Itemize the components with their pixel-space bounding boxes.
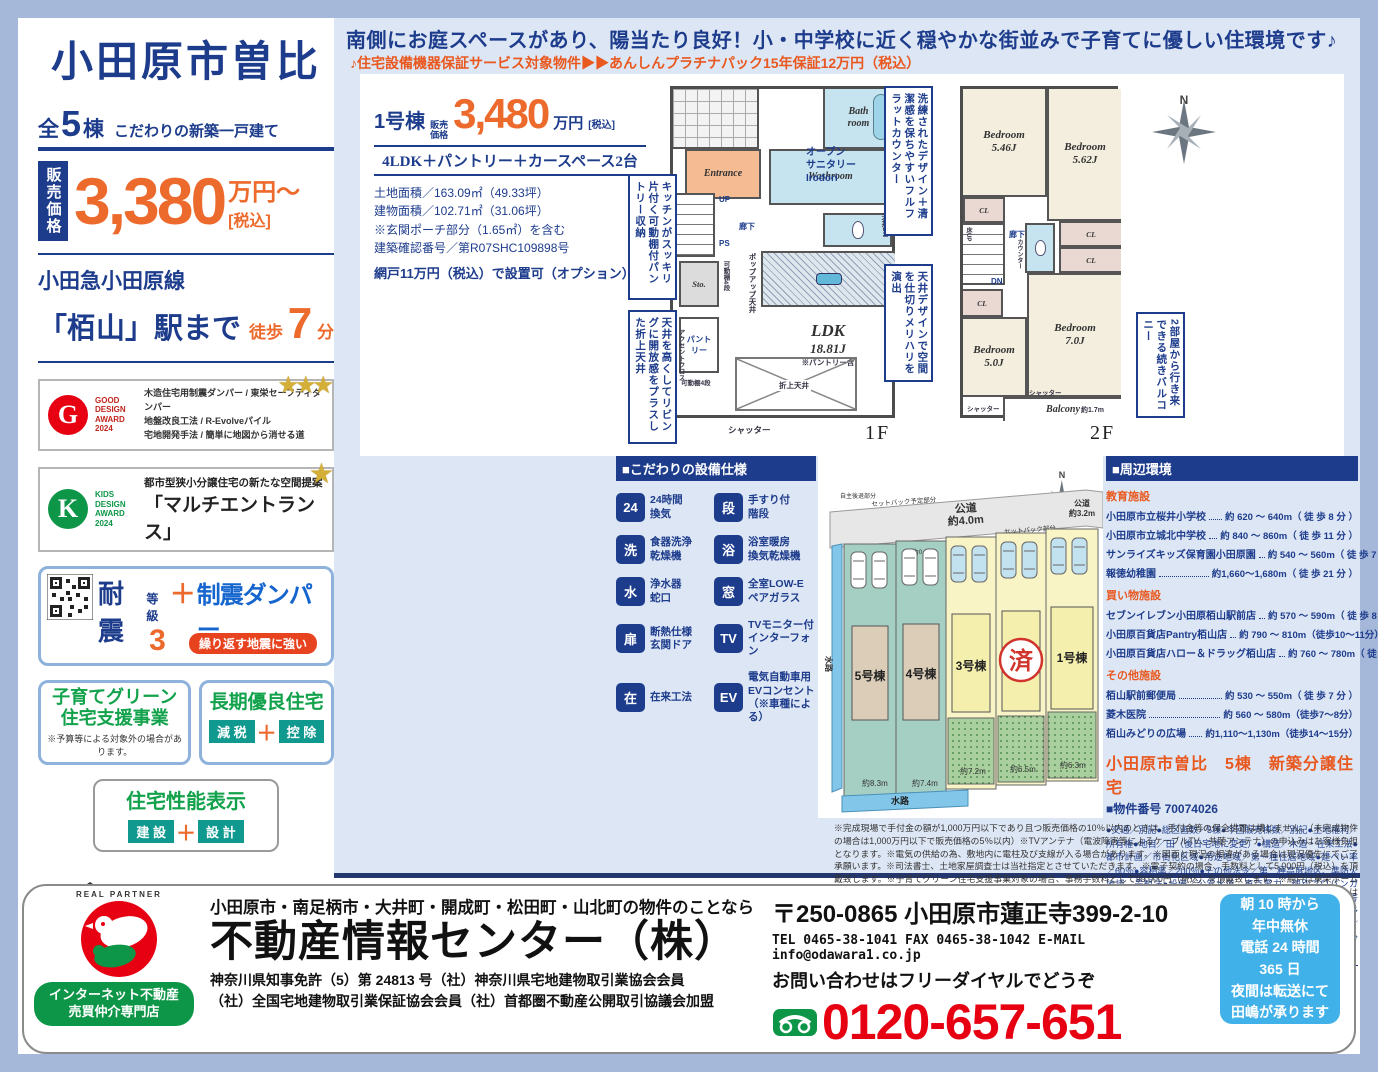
ev-outlet-icon: EV: [714, 683, 743, 712]
env-item: 栢山みどりの広場約1,110～1,130m（徒歩14～15分）: [1106, 725, 1358, 740]
equipment-label: 浄水器 蛇口: [650, 578, 682, 604]
pantry: パント リー: [679, 317, 719, 373]
facility-name: セブンイレブン小田原栢山駅前店: [1106, 607, 1256, 622]
balcony-label: Balcony: [1046, 404, 1080, 416]
bedroom-label: Bedroom: [973, 344, 1015, 356]
env-item: 小田原市立城北中学校約 840 ～ 860m（ 徒 歩 11 分 ）: [1106, 527, 1358, 542]
env-item: 小田原百貨店Pantry栢山店約 790 ～ 810m（徒歩10～11分）: [1106, 626, 1358, 641]
environment-header: ■周辺環境: [1106, 456, 1358, 481]
freedial-number: 0120-657-651: [822, 993, 1121, 1051]
good-design-logo-icon: G: [48, 395, 88, 435]
insulated-door-icon: 扉: [616, 624, 645, 653]
good-design-award-name: GOOD DESIGN AWARD 2024: [95, 396, 137, 434]
facility-name: 報徳幼稚園: [1106, 565, 1156, 580]
support-boxes: 子育てグリーン 住宅支援事業 ※予算等による対象外の場合があります。 長期優良住…: [38, 680, 334, 765]
bedroom-50: Bedroom5.0J: [963, 317, 1027, 397]
dotted-leader: [1149, 717, 1220, 718]
env-item: サンライズキッズ保育園小田原園約 540 ～ 560m（ 徒 歩 7 分 ）: [1106, 546, 1358, 561]
real-partner-label: REAL PARTNER: [44, 890, 194, 899]
waterway-bottom-label: 水路: [891, 795, 910, 806]
kids-design-award-name: KIDS DESIGN AWARD 2024: [95, 490, 137, 528]
seismic-content: 耐震 等級 3 ＋ 制震ダンパー 繰り返す地震に強い: [98, 574, 325, 658]
coffered-ceiling: 折上天井: [735, 357, 857, 411]
equipment-item: 2424時間 換気: [616, 493, 708, 522]
units-tagline: こだわりの新築一戸建て: [114, 120, 279, 141]
freedial-icon: [772, 1005, 818, 1039]
facility-name: 菱木医院: [1106, 706, 1146, 721]
main-area: 南側にお庭スペースがあり、陽当たり良好！小・中学校に近く穏やかな街並みで子育てに…: [334, 18, 1360, 878]
unit1-price-label: 販売 価格: [430, 120, 448, 141]
unit1-price-row: 1号棟 販売 価格 3,480 万円 [税込]: [374, 90, 646, 141]
lot-name: 5号棟: [855, 668, 887, 683]
units-suffix: 棟: [83, 113, 104, 143]
env-group-title: 買い物施設: [1106, 587, 1358, 603]
divider: [38, 361, 334, 363]
price-unit: 万円～: [228, 172, 300, 207]
entrance: Entrance: [685, 149, 761, 199]
bedroom-70: Bedroom7.0J: [1027, 273, 1121, 397]
unit1-land-area: 土地面積／163.09㎡（49.33坪）: [374, 184, 646, 203]
jishu-label: 自主後退部分: [840, 492, 876, 500]
lot-name: 4号棟: [906, 666, 938, 681]
seismic-grade-box: 耐震 等級 3 ＋ 制震ダンパー 繰り返す地震に強い: [38, 566, 334, 666]
flyer-page: 小田原市曽比 全 5 棟 こだわりの新築一戸建て 販売価格 3,380 万円～ …: [0, 0, 1378, 1072]
bird-logo-icon: [79, 899, 159, 979]
license-line2: （社）全国宅地建物取引業保証協会会員（社）首都圏不動産公開取引協議会加盟: [210, 991, 765, 1012]
performance-label-box: 住宅性能表示 建 設 ＋ 設 計: [93, 779, 279, 852]
equipment-label: 全室LOW-E ペアガラス: [748, 578, 804, 604]
walk-prefix: 徒歩: [249, 323, 283, 342]
lot-width: 約6.5m: [1010, 764, 1036, 774]
shelf-label: 可動棚4段: [681, 377, 711, 387]
property-location-title: 小田原市曽比: [38, 28, 334, 89]
tv-intercom-icon: TV: [714, 624, 743, 653]
callout-partition: 天井デザインで空間を仕切りメリハリを演出: [884, 264, 933, 382]
inquiry-line: お問い合わせはフリーダイヤルでどうぞ: [772, 967, 1234, 993]
dotted-leader: [1259, 618, 1265, 619]
sold-stamp: 済: [1000, 639, 1042, 681]
walk-suffix: 分: [317, 323, 334, 342]
env-item: 報徳幼稚園約1,660～1,680m（ 徒 歩 21 分 ）: [1106, 565, 1358, 580]
dn-label: DN: [991, 277, 1003, 286]
floor-up-label: 床UP: [964, 227, 973, 257]
lot-width: 約7.2m: [960, 766, 986, 776]
equipment-item: EV電気自動車用 EVコンセント （※車種による）: [714, 671, 816, 724]
unit1-info: 1号棟 販売 価格 3,480 万円 [税込] 4LDK＋パントリー＋カースペー…: [374, 90, 646, 282]
floorplan-2f: Bedroom5.46J Bedroom5.62J CL DN 床UP 廊下 カ…: [960, 86, 1118, 418]
closet-label: CL: [977, 299, 987, 308]
low-e-glass-icon: 窓: [714, 577, 743, 606]
closet: CL: [1059, 221, 1121, 247]
equipment-item: 在在来工法: [616, 671, 708, 724]
facility-distance: 約1,660～1,680m（ 徒 歩 21 分 ）: [1212, 566, 1358, 580]
facility-distance: 約 620 ～ 640m（ 徒 歩 8 分 ）: [1225, 509, 1358, 523]
good-design-award-box: G GOOD DESIGN AWARD 2024 木造住宅用制震ダンパー / 東…: [38, 379, 334, 451]
facility-name: 小田原市立城北中学校: [1106, 527, 1206, 542]
shutter-label: シャッター: [1029, 387, 1062, 397]
dotted-leader: [1189, 736, 1202, 737]
equipment-item: 浴浴室暖房 換気乾燥機: [714, 535, 816, 564]
north-label: N: [1059, 470, 1066, 480]
env-group-title: 教育施設: [1106, 488, 1358, 504]
toilet-icon: [852, 221, 864, 239]
equipment-label: 食器洗浄 乾燥機: [650, 536, 692, 562]
facility-name: 小田原百貨店Pantry栢山店: [1106, 626, 1227, 641]
closet: CL: [1059, 247, 1121, 273]
plus-sign: ＋: [176, 817, 196, 846]
site-plan: N 公道 約4.0m 公道 約3.2m セットバック予定部分 セットバック部分 …: [818, 456, 1103, 818]
property-title: 小田原市曽比 5棟 新築分譲住宅: [1106, 750, 1358, 798]
equipment-item: 段手すり付 階段: [714, 493, 816, 522]
tel-fax-email: TEL 0465-38-1041 FAX 0465-38-1042 E-MAIL…: [772, 933, 1234, 963]
shutter-label: シャッター: [967, 403, 1000, 413]
sink-icon: [816, 273, 842, 285]
kids-design-award-box: K KIDS DESIGN AWARD 2024 都市型狭小分譲住宅の新たな空間…: [38, 467, 334, 552]
ldk-size: 18.81J: [768, 341, 888, 357]
facility-distance: 約 530 ～ 550m（ 徒 歩 7 分 ）: [1225, 688, 1358, 702]
lot-name: 1号棟: [1057, 650, 1089, 665]
porch-area: [673, 89, 759, 149]
earthquake-badge: 繰り返す地震に強い: [189, 633, 317, 654]
unit1-building-area: 建物面積／102.71㎡（31.06坪）: [374, 202, 646, 221]
kids-design-lines: 都市型狭小分譲住宅の新たな空間提案 「マルチエントランス」: [144, 475, 324, 544]
qr-code-icon: [47, 574, 93, 620]
catch-copy: 南側にお庭スペースがあり、陽当たり良好！小・中学校に近く穏やかな街並みで子育てに…: [346, 24, 1337, 53]
sold-stamp-label: 済: [1009, 647, 1034, 675]
facility-name: 小田原市立桜井小学校: [1106, 508, 1206, 523]
entrance-label: Entrance: [704, 168, 742, 180]
env-item: 栢山駅前郵便局約 530 ～ 550m（ 徒 歩 7 分 ）: [1106, 687, 1358, 702]
company-address: 〒250-0865 小田原市蓮正寺399-2-10: [772, 894, 1234, 929]
equipment-item: 窓全室LOW-E ペアガラス: [714, 577, 816, 606]
price-value: 3,380: [74, 161, 224, 241]
env-group-title: その他施設: [1106, 667, 1358, 683]
dotted-leader: [1259, 557, 1265, 558]
facility-distance: 約1,110～1,130m（徒歩14～15分）: [1205, 726, 1358, 740]
up-label: UP: [719, 195, 730, 204]
floor1-tag: 1F: [865, 422, 890, 445]
callout-ceiling: 天井を高くしてリビングに開放感をプラスした折上天井: [628, 310, 677, 444]
pantry-label: パント リー: [687, 334, 711, 356]
contact-block: 〒250-0865 小田原市蓮正寺399-2-10 TEL 0465-38-10…: [772, 894, 1234, 1051]
storage: Sto.: [679, 261, 719, 307]
business-hours-box: 朝 10 時から 年中無休 電話 24 時間 365 日 夜間は転送にて 田嶋が…: [1220, 894, 1340, 1024]
gold-stars-icon: ★★★: [277, 371, 330, 400]
closet: CL: [963, 197, 1005, 223]
toilet-icon: [1035, 240, 1046, 256]
dotted-leader: [1209, 519, 1222, 520]
shelf-label: 可動棚4段: [720, 261, 730, 311]
callout-sanitary: オープン サニタリー Irodori: [806, 146, 856, 185]
dotted-leader: [1209, 538, 1217, 539]
construction-tag: 建 設: [128, 820, 174, 843]
counter-label: カウンター: [1015, 239, 1024, 279]
env-item: 小田原市立桜井小学校約 620 ～ 640m（ 徒 歩 8 分 ）: [1106, 508, 1358, 523]
gold-star-icon: ★: [309, 457, 330, 490]
rail-line: 小田急小田原線: [38, 265, 334, 295]
equipment-item: 扉断熱仕様 玄関ドア: [616, 619, 708, 658]
company-name: 不動産情報センター（株）: [210, 920, 765, 965]
good-design-line: 地盤改良工法 / R-Evolveパイル: [144, 415, 324, 429]
lot-width: 約8.3m: [862, 778, 888, 788]
ventilation-icon: 24: [616, 493, 645, 522]
long-term-quality-box: 長期優良住宅 減 税 ＋ 控 除: [199, 680, 334, 765]
equipment-item: 水浄水器 蛇口: [616, 577, 708, 606]
env-item: 小田原百貨店ハロー＆ドラッグ栢山店約 760 ～ 780m（ 徒 歩 10 分 …: [1106, 645, 1358, 660]
company-logo-block: REAL PARTNER: [44, 890, 194, 984]
freedial-row: 0120-657-651: [772, 993, 1234, 1051]
company-block: 小田原市・南足柄市・大井町・開成町・松田町・山北町の物件のことなら 不動産情報セ…: [210, 894, 765, 1012]
kosodate-green-box: 子育てグリーン 住宅支援事業 ※予算等による対象外の場合があります。: [38, 680, 191, 765]
kids-design-logo-icon: K: [48, 489, 88, 529]
bath-dryer-icon: 浴: [714, 535, 743, 564]
divider: [38, 253, 334, 255]
equipment-item: 洗食器洗浄 乾燥機: [616, 535, 708, 564]
service-areas: 小田原市・南足柄市・大井町・開成町・松田町・山北町の物件のことなら: [210, 894, 765, 918]
kosodate-line2: 住宅支援事業: [43, 708, 186, 730]
closet-label: CL: [1086, 230, 1096, 239]
road-right-width: 約3.2m: [1069, 508, 1095, 518]
unit1-specs: 土地面積／163.09㎡（49.33坪） 建物面積／102.71㎡（31.06坪…: [374, 184, 646, 258]
bedroom-562: Bedroom5.62J: [1047, 89, 1121, 221]
footer: REAL PARTNER インターネット不動産 売買仲介専門店 小田原市・南足柄…: [22, 884, 1356, 1054]
lot-width: 約6.3m: [1060, 760, 1086, 770]
plus-sign: ＋: [170, 574, 196, 611]
lot-width: 約7.4m: [912, 778, 938, 788]
facility-distance: 約 540 ～ 560m（ 徒 歩 7 分 ）: [1268, 547, 1378, 561]
callout-pantry: キッチンがスッキリ片付く可動棚付パントリー収納: [628, 174, 677, 300]
kosodate-note: ※予算等による対象外の場合があります。: [43, 732, 186, 758]
toilet-room-2f: [1025, 223, 1055, 273]
balcony-depth: 約1.7m: [1081, 405, 1104, 415]
price-block: 販売価格 3,380 万円～ [税込]: [38, 161, 334, 241]
equipment-label: 電気自動車用 EVコンセント （※車種による）: [748, 671, 816, 724]
env-item: セブンイレブン小田原栢山駅前店約 570 ～ 590m（ 徒 歩 8 分 ）: [1106, 607, 1358, 622]
property-number: ■物件番号 70074026: [1106, 800, 1358, 817]
handrail-stairs-icon: 段: [714, 493, 743, 522]
floorplan-panel: 1号棟 販売 価格 3,480 万円 [税込] 4LDK＋パントリー＋カースペー…: [360, 74, 1344, 456]
unit1-name: 1号棟: [374, 105, 425, 134]
facility-distance: 約 790 ～ 810m（徒歩10～11分）: [1239, 627, 1378, 641]
facility-name: 栢山みどりの広場: [1106, 725, 1186, 740]
equipment-label: 断熱仕様 玄関ドア: [650, 626, 692, 652]
license-line1: 神奈川県知事免許（5）第 24813 号（社）神奈川県宅地建物取引業協会会員: [210, 970, 765, 991]
facility-distance: 約 840 ～ 860m（ 徒 歩 11 分 ）: [1220, 528, 1358, 542]
kosodate-line1: 子育てグリーン: [43, 687, 186, 709]
equipment-label: 24時間 換気: [650, 494, 683, 520]
equipment-label: 手すり付 階段: [748, 494, 790, 520]
bathroom: Bath room: [823, 89, 892, 149]
kitchen-area: [761, 251, 895, 307]
bedroom-size: 5.46J: [992, 142, 1017, 154]
seino-tags: 建 設 ＋ 設 計: [97, 817, 275, 846]
units-prefix: 全: [38, 113, 59, 143]
ps-label: PS: [719, 239, 730, 248]
hallway-label: 廊下: [739, 221, 755, 232]
popup-ceiling-label: ポップアップ天井: [747, 253, 758, 339]
walk-time: 徒歩 7 分: [249, 299, 334, 349]
compass-icon: N: [1152, 92, 1216, 164]
lot-name: 3号棟: [956, 658, 988, 673]
equipment-label: TVモニター付 インターフォン: [748, 619, 816, 658]
facility-name: 栢山駅前郵便局: [1106, 687, 1176, 702]
unit1-layout: 4LDK＋パントリー＋カースペース2台: [374, 145, 646, 176]
dotted-leader: [1230, 637, 1236, 638]
walk-minutes: 7: [288, 299, 312, 348]
choki-tags: 減 税 ＋ 控 除: [204, 717, 329, 746]
equipment-header: ■こだわりの設備仕様: [616, 456, 816, 481]
env-item: 菱木医院約 560 ～ 580m（徒歩7～8分）: [1106, 706, 1358, 721]
facility-distance: 約 570 ～ 590m（ 徒 歩 8 分 ）: [1268, 608, 1378, 622]
callout-counter: 洗練されたデザイン＋清潔感を保ちやすいフルフラットカウンター: [884, 86, 933, 236]
unit1-screen-option: 網戸11万円（税込）で設置可（オプション）: [374, 263, 646, 282]
dotted-leader: [1179, 698, 1222, 699]
dotted-leader: [1279, 656, 1285, 657]
license-lines: 神奈川県知事免許（5）第 24813 号（社）神奈川県宅地建物取引業協会会員 （…: [210, 970, 765, 1012]
design-tag: 設 計: [198, 820, 244, 843]
dishwasher-icon: 洗: [616, 535, 645, 564]
facility-distance: 約 560 ～ 580m（徒歩7～8分）: [1223, 707, 1358, 721]
closet-label: CL: [979, 206, 989, 215]
internet-realestate-badge: インターネット不動産 売買仲介専門店: [34, 982, 194, 1026]
ldk-label: LDK: [811, 321, 845, 340]
plus-sign: ＋: [257, 717, 277, 746]
floorplan-1f: Bath room Entrance Washroom UP 廊下 PS Sto…: [670, 86, 895, 418]
grade-word: 等級: [146, 590, 168, 624]
units-number: 5: [61, 103, 81, 145]
unit1-price-value: 3,480: [453, 90, 548, 138]
closet-label: CL: [1086, 256, 1096, 265]
equipment-grid: 2424時間 換気 段手すり付 階段 洗食器洗浄 乾燥機 浴浴室暖房 換気乾燥機…: [616, 493, 816, 724]
bathroom-label: Bath room: [848, 106, 870, 130]
choki-title: 長期優良住宅: [204, 687, 329, 714]
stairs-up: [673, 193, 715, 257]
station-name: 「栢山」駅まで: [38, 305, 241, 347]
service-line: ♪住宅設備機器保証サービス対象物件▶▶あんしんプラチナパック15年保証12万円（…: [350, 53, 920, 73]
equipment-item: TVTVモニター付 インターフォン: [714, 619, 816, 658]
waterway-left-label: 水路: [824, 655, 834, 673]
unit1-price-tax: [税込]: [588, 116, 615, 131]
seino-title: 住宅性能表示: [97, 785, 275, 814]
price-unit-block: 万円～ [税込]: [228, 172, 300, 231]
shutter-label: シャッター: [728, 424, 771, 436]
facility-name: 小田原百貨店ハロー＆ドラッグ栢山店: [1106, 645, 1276, 660]
unit1-price-unit: 万円: [553, 112, 583, 133]
water-purifier-icon: 水: [616, 577, 645, 606]
price-label: 販売価格: [38, 161, 68, 241]
unit1-confirmation-number: 建築確認番号／第R07SHC109898号: [374, 239, 646, 258]
unit1-porch-note: ※玄関ポーチ部分（1.65㎡）を含む: [374, 221, 646, 240]
site-plan-drawing: N 公道 約4.0m 公道 約3.2m セットバック予定部分 セットバック部分 …: [818, 456, 1103, 818]
good-design-line: 宅地開発手法 / 簡単に地図から消せる道: [144, 429, 324, 443]
conventional-method-icon: 在: [616, 683, 645, 712]
bedroom-label: Bedroom: [1054, 322, 1096, 334]
bedroom-size: 5.62J: [1073, 154, 1098, 166]
road-right-label: 公道: [1074, 498, 1090, 508]
road-top-label: 公道: [954, 500, 977, 516]
storage-label: Sto.: [692, 279, 705, 289]
closet: CL: [963, 289, 1003, 317]
flyer-inner: 小田原市曽比 全 5 棟 こだわりの新築一戸建て 販売価格 3,380 万円～ …: [18, 18, 1360, 1054]
facility-name: サンライズキッズ保育園小田原園: [1106, 546, 1256, 561]
bedroom-546: Bedroom5.46J: [963, 89, 1047, 197]
bedroom-label: Bedroom: [983, 129, 1025, 141]
deduction-tag: 控 除: [279, 720, 325, 743]
equipment-label: 浴室暖房 換気乾燥機: [748, 536, 801, 562]
station-row: 「栢山」駅まで 徒歩 7 分: [38, 299, 334, 349]
equipment-section: ■こだわりの設備仕様 2424時間 換気 段手すり付 階段 洗食器洗浄 乾燥機 …: [616, 456, 816, 724]
tax-reduction-tag: 減 税: [209, 720, 255, 743]
grade-number: 3: [149, 624, 166, 658]
floor2-tag: 2F: [1090, 422, 1115, 445]
dotted-leader: [1159, 576, 1209, 577]
total-units: 全 5 棟 こだわりの新築一戸建て: [38, 103, 334, 151]
taishin-word: 耐震: [98, 574, 146, 648]
kids-design-line2: 「マルチエントランス」: [144, 490, 324, 544]
price-tax: [税込]: [228, 207, 300, 231]
kids-design-line1: 都市型狭小分譲住宅の新たな空間提案: [144, 475, 324, 490]
bedroom-size: 5.0J: [984, 357, 1003, 369]
coffered-ceiling-label: 折上天井: [777, 380, 811, 391]
callout-balcony: 2部屋から行き来できる続きバルコニー: [1136, 312, 1185, 418]
equipment-label: 在来工法: [650, 691, 692, 704]
facility-distance: 約 760 ～ 780m（ 徒 歩 10 分 ）: [1288, 646, 1378, 660]
bedroom-label: Bedroom: [1064, 141, 1106, 153]
bedroom-size: 7.0J: [1065, 335, 1084, 347]
